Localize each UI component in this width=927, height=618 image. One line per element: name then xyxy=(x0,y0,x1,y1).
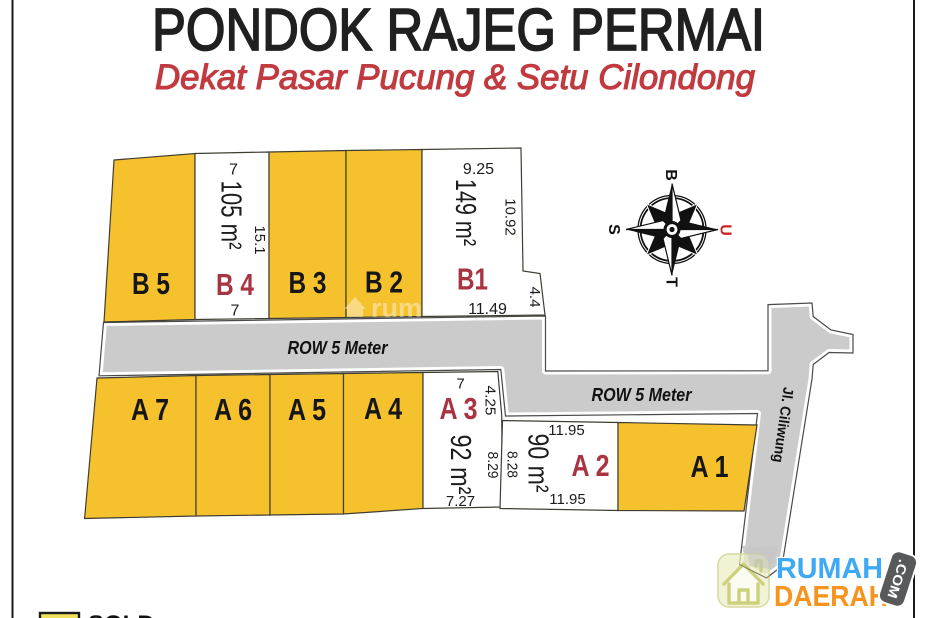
svg-text:7: 7 xyxy=(456,376,464,393)
svg-text:B 4: B 4 xyxy=(216,267,255,302)
svg-text:ROW 5 Meter: ROW 5 Meter xyxy=(592,385,693,405)
svg-text:A 2: A 2 xyxy=(572,448,610,483)
svg-text:11.49: 11.49 xyxy=(468,301,507,318)
svg-text:A 6: A 6 xyxy=(214,392,252,427)
svg-text:7: 7 xyxy=(229,162,238,179)
svg-text:4.25: 4.25 xyxy=(481,386,498,416)
svg-text:B1: B1 xyxy=(457,262,488,297)
svg-text:S: S xyxy=(605,224,622,235)
svg-text:ROW 5 Meter: ROW 5 Meter xyxy=(288,338,389,358)
svg-text:11.95: 11.95 xyxy=(549,491,585,508)
svg-text:A 1: A 1 xyxy=(691,449,729,484)
svg-text:B: B xyxy=(662,169,679,181)
svg-text:U: U xyxy=(716,224,733,236)
svg-text:Dekat Pasar Pucung & Setu Cilo: Dekat Pasar Pucung & Setu Cilondong xyxy=(155,58,756,97)
svg-text:B 3: B 3 xyxy=(289,265,327,300)
svg-text:T: T xyxy=(662,277,679,287)
svg-text:149 m²: 149 m² xyxy=(449,179,481,246)
svg-text:rum: rum xyxy=(371,293,422,323)
svg-text:105 m²: 105 m² xyxy=(214,181,246,250)
svg-text:92 m²: 92 m² xyxy=(444,435,476,495)
svg-text:8.28: 8.28 xyxy=(503,451,520,478)
svg-text:7: 7 xyxy=(231,303,240,320)
svg-text:PONDOK RAJEG PERMAI: PONDOK RAJEG PERMAI xyxy=(152,0,765,63)
svg-text:A 3: A 3 xyxy=(440,391,478,426)
svg-text:A 7: A 7 xyxy=(131,392,169,427)
svg-text:7.27: 7.27 xyxy=(446,493,475,510)
svg-text:DAERAH: DAERAH xyxy=(774,581,888,613)
svg-text:15.1: 15.1 xyxy=(251,225,268,254)
svg-text:SOLD: SOLD xyxy=(88,611,155,618)
svg-text:90 m²: 90 m² xyxy=(521,434,553,493)
svg-text:A 4: A 4 xyxy=(364,391,403,426)
svg-text:4.4: 4.4 xyxy=(526,287,543,308)
svg-text:A 5: A 5 xyxy=(288,392,326,427)
svg-text:B 5: B 5 xyxy=(132,266,170,301)
svg-text:10.92: 10.92 xyxy=(501,198,518,236)
svg-text:9.25: 9.25 xyxy=(463,161,494,178)
svg-text:8.29: 8.29 xyxy=(484,452,501,479)
